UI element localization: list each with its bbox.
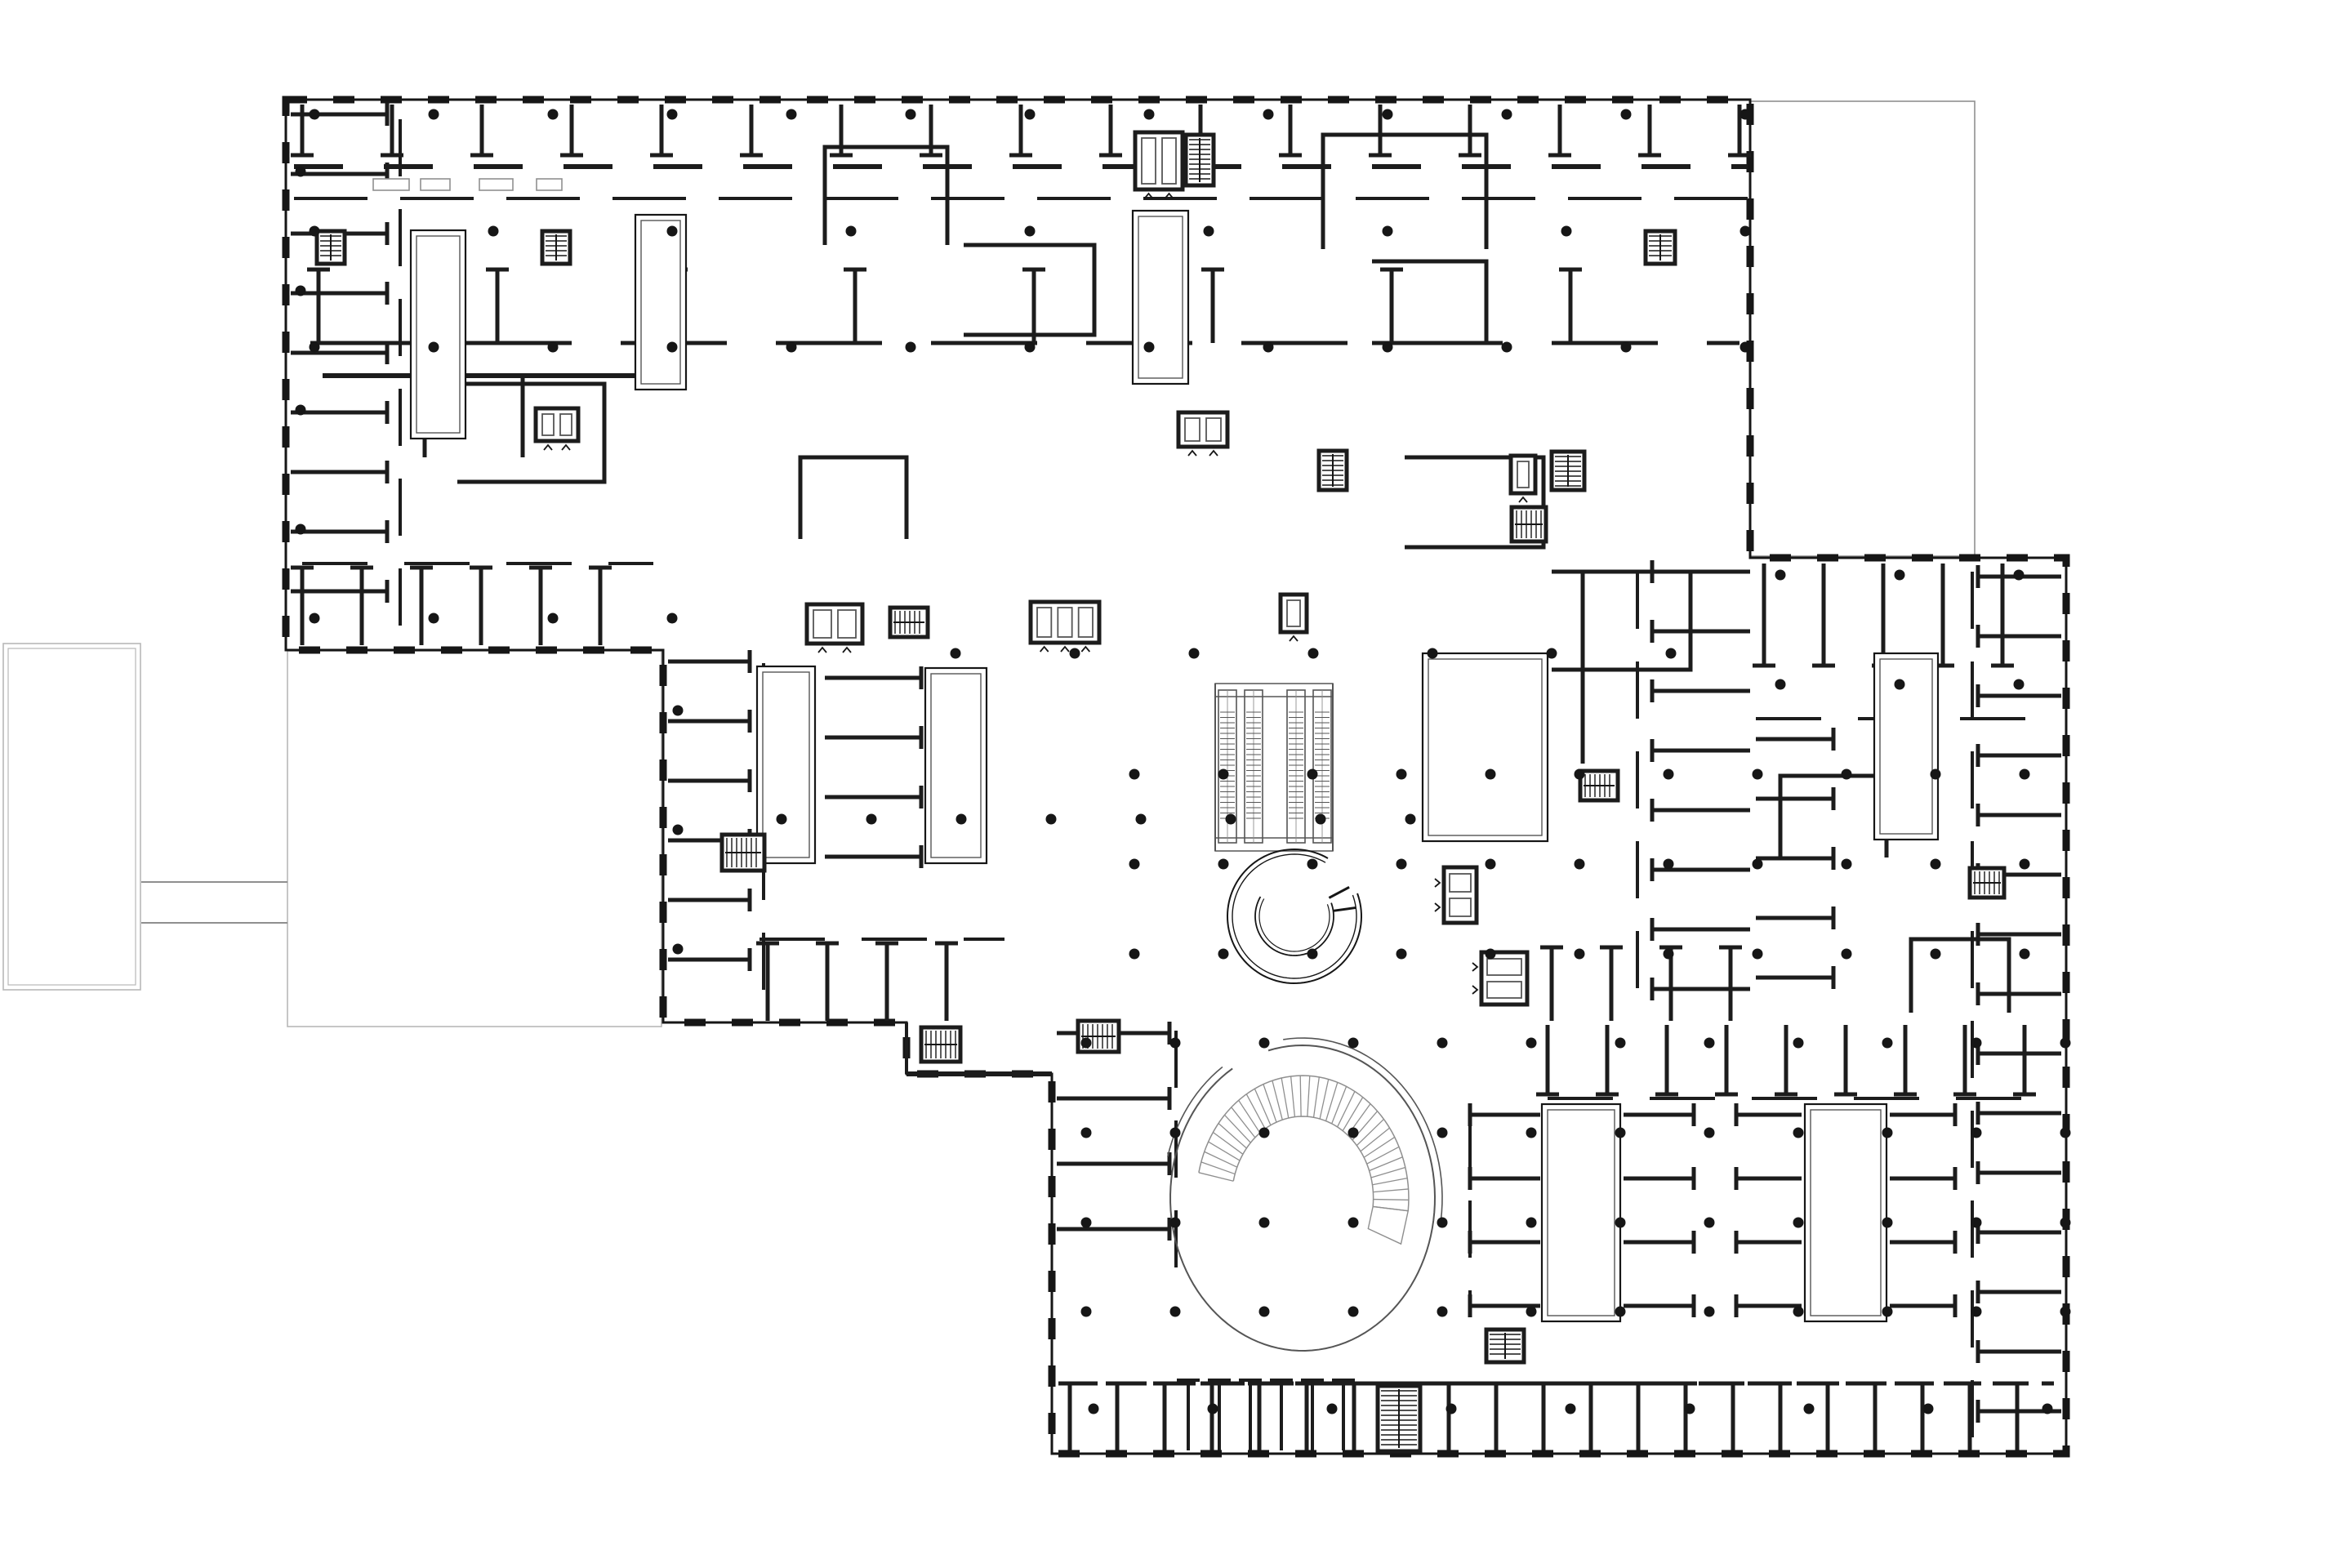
floor-plan-canvas bbox=[0, 0, 2352, 1568]
floor-plan-drawing bbox=[0, 0, 2352, 1568]
